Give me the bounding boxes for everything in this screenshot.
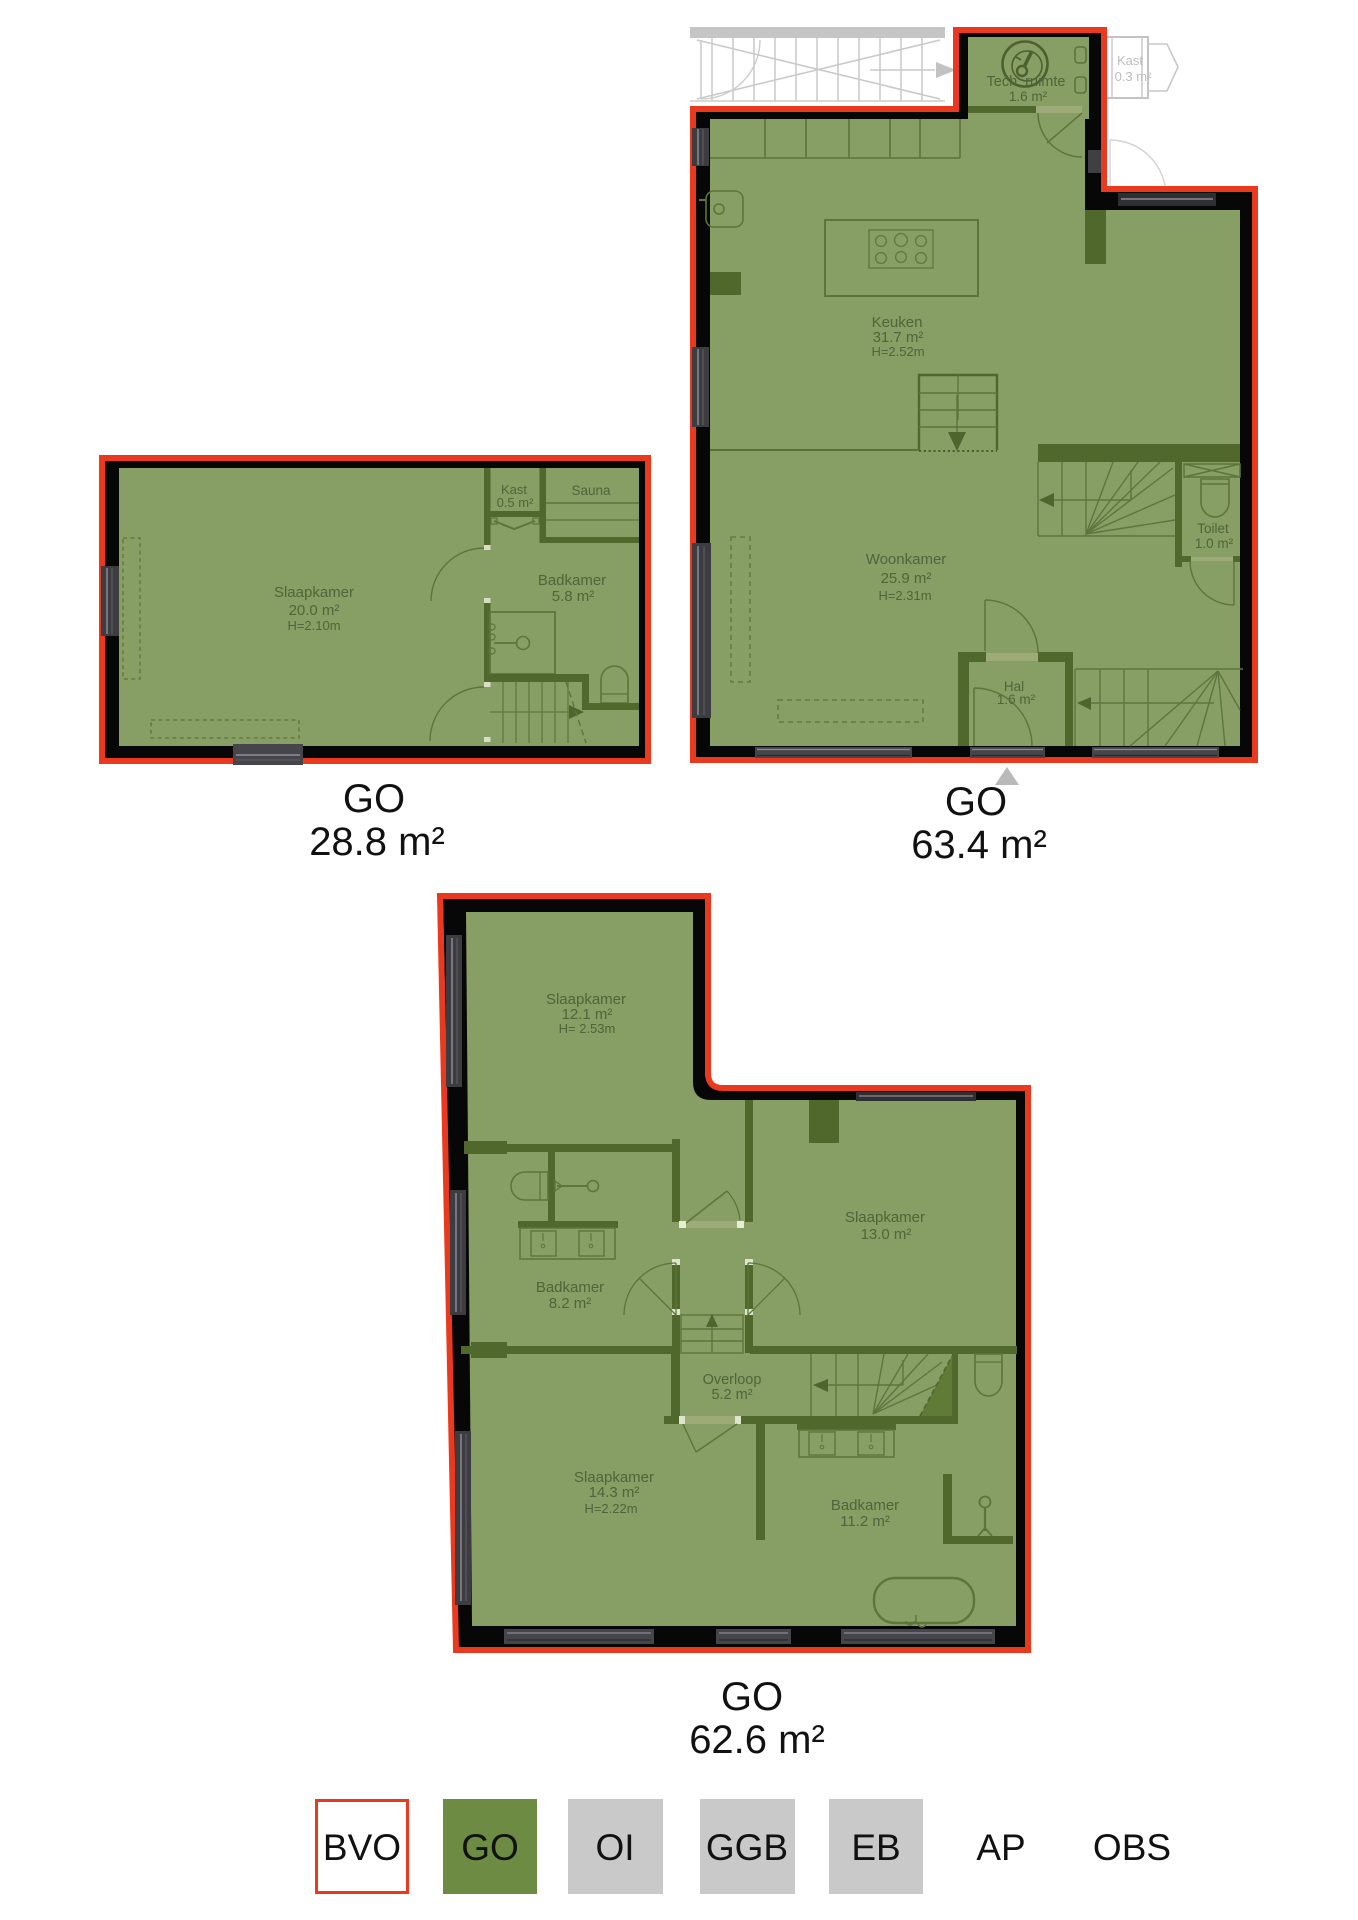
svg-text:Slaapkamer: Slaapkamer xyxy=(274,584,354,601)
svg-text:Toilet: Toilet xyxy=(1197,521,1229,536)
svg-text:8.2 m²: 8.2 m² xyxy=(549,1295,592,1312)
svg-text:H=2.22m: H=2.22m xyxy=(584,1501,637,1516)
svg-text:14.3 m²: 14.3 m² xyxy=(589,1484,640,1501)
svg-text:0.3 m²: 0.3 m² xyxy=(1115,69,1153,84)
svg-text:Woonkamer: Woonkamer xyxy=(866,551,947,568)
svg-text:5.8 m²: 5.8 m² xyxy=(552,588,595,605)
svg-text:63.4 m²: 63.4 m² xyxy=(911,823,1047,867)
svg-text:GO: GO xyxy=(343,777,405,821)
svg-text:H=2.52m: H=2.52m xyxy=(871,344,924,359)
svg-text:1.6 m²: 1.6 m² xyxy=(997,692,1036,707)
svg-text:H= 2.53m: H= 2.53m xyxy=(559,1021,616,1036)
svg-text:H=2.10m: H=2.10m xyxy=(287,618,340,633)
svg-text:H=2.31m: H=2.31m xyxy=(878,588,931,603)
svg-text:25.9 m²: 25.9 m² xyxy=(881,570,932,587)
svg-text:Tech. ruimte: Tech. ruimte xyxy=(987,74,1066,90)
svg-text:OI: OI xyxy=(595,1827,634,1868)
svg-text:11.2 m²: 11.2 m² xyxy=(840,1513,890,1530)
svg-text:20.0 m²: 20.0 m² xyxy=(289,602,340,619)
svg-text:GO: GO xyxy=(461,1827,519,1868)
svg-text:GGB: GGB xyxy=(706,1827,788,1868)
svg-text:Sauna: Sauna xyxy=(571,483,611,498)
svg-text:OBS: OBS xyxy=(1093,1827,1171,1868)
svg-text:Slaapkamer: Slaapkamer xyxy=(845,1209,925,1226)
svg-text:13.0 m²: 13.0 m² xyxy=(861,1226,912,1243)
svg-text:28.8 m²: 28.8 m² xyxy=(309,820,445,864)
svg-text:GO: GO xyxy=(721,1675,783,1719)
svg-text:GO: GO xyxy=(945,780,1007,824)
svg-text:Overloop: Overloop xyxy=(703,1372,762,1388)
svg-text:1.6 m²: 1.6 m² xyxy=(1009,89,1048,104)
svg-text:BVO: BVO xyxy=(323,1827,401,1868)
svg-text:AP: AP xyxy=(976,1827,1025,1868)
svg-text:Badkamer: Badkamer xyxy=(536,1279,604,1296)
svg-text:5.2 m²: 5.2 m² xyxy=(711,1387,752,1403)
svg-text:Badkamer: Badkamer xyxy=(831,1497,899,1514)
svg-text:62.6 m²: 62.6 m² xyxy=(689,1718,825,1762)
svg-text:Badkamer: Badkamer xyxy=(538,572,606,589)
svg-text:EB: EB xyxy=(851,1827,900,1868)
svg-text:1.0 m²: 1.0 m² xyxy=(1195,536,1234,551)
svg-text:0.5 m²: 0.5 m² xyxy=(497,495,535,510)
svg-text:Kast: Kast xyxy=(1117,53,1143,68)
